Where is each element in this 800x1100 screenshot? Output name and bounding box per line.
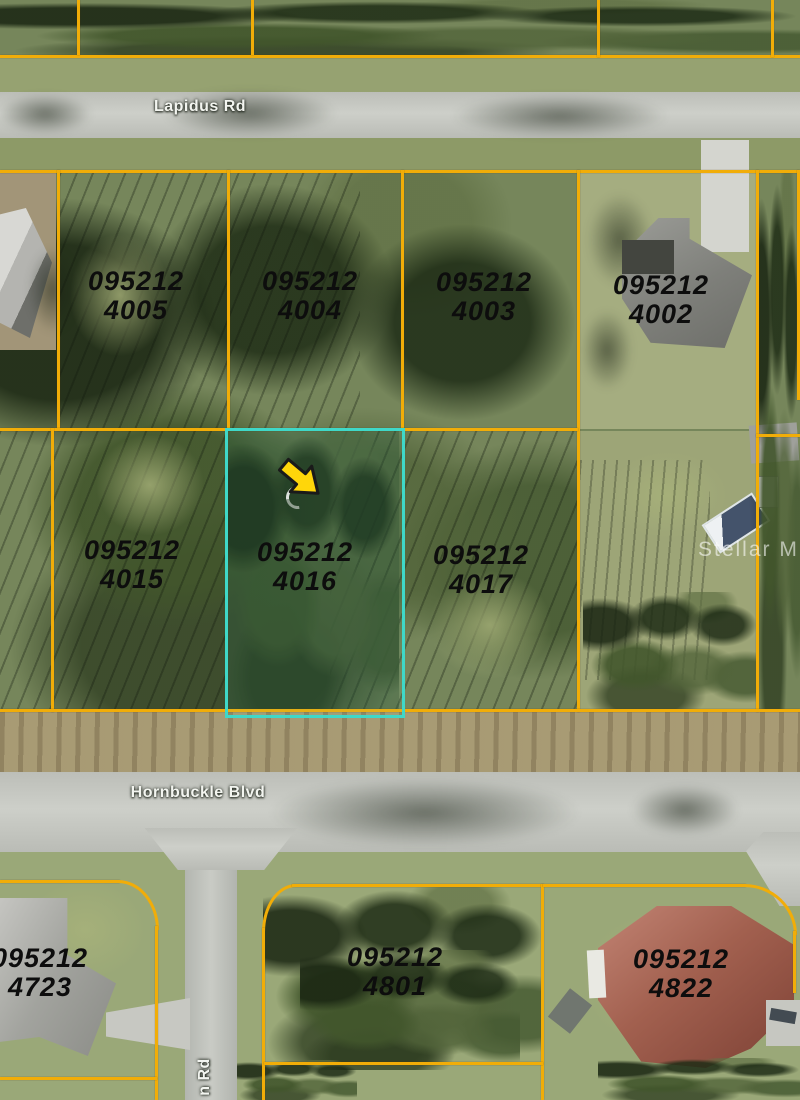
parcel-id-4723: 0952124723 bbox=[0, 944, 88, 1002]
parcel-id-4016: 0952124016 bbox=[257, 538, 353, 596]
parcel-id-4005: 0952124005 bbox=[88, 267, 184, 325]
labels-layer: 0952124005095212400409521240030952124002… bbox=[0, 0, 800, 1100]
aerial-parcel-map: 0952124005095212400409521240030952124002… bbox=[0, 0, 800, 1100]
parcel-id-4801: 0952124801 bbox=[347, 943, 443, 1001]
road-label-side-road: n Rd bbox=[196, 1058, 214, 1096]
stellar-mls-watermark: Stellar MLS bbox=[698, 538, 800, 562]
parcel-id-4822: 0952124822 bbox=[633, 945, 729, 1003]
parcel-id-4002: 0952124002 bbox=[613, 271, 709, 329]
road-label-lapidus: Lapidus Rd bbox=[154, 98, 246, 116]
parcel-id-4003: 0952124003 bbox=[436, 268, 532, 326]
parcel-id-4017: 0952124017 bbox=[433, 541, 529, 599]
parcel-id-4004: 0952124004 bbox=[262, 267, 358, 325]
road-label-hornbuckle: Hornbuckle Blvd bbox=[131, 784, 266, 802]
parcel-id-4015: 0952124015 bbox=[84, 536, 180, 594]
